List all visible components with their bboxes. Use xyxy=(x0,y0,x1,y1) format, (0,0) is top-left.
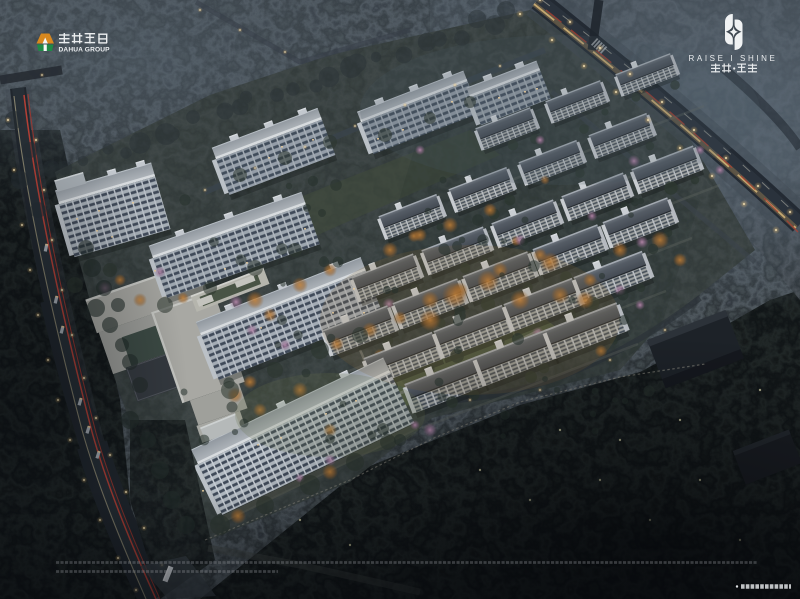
svg-text:DAHUA GROUP: DAHUA GROUP xyxy=(59,47,111,54)
svg-text:RAISE I SHINE: RAISE I SHINE xyxy=(689,54,778,63)
